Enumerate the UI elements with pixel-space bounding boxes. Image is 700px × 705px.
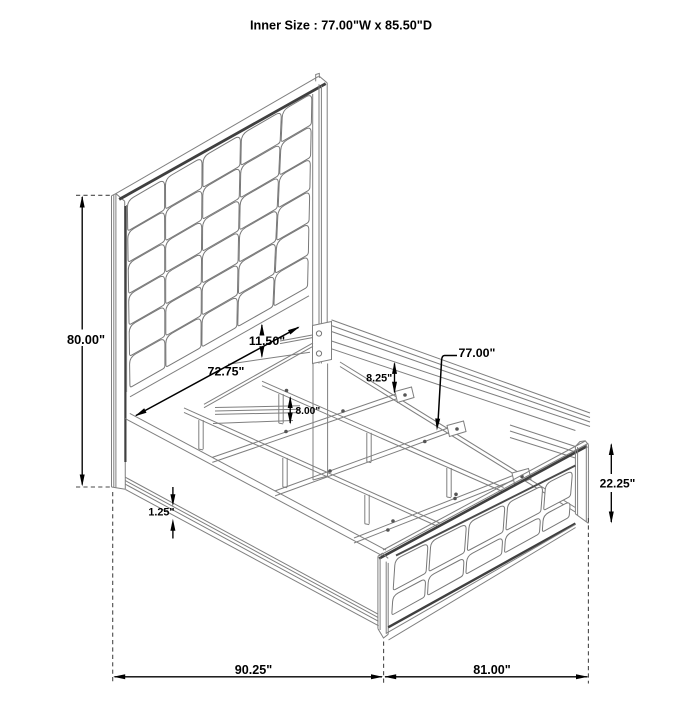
svg-text:77.00": 77.00": [459, 346, 496, 360]
svg-text:1.25": 1.25": [148, 507, 174, 519]
svg-text:Inner Size : 77.00"W x 85.50"D: Inner Size : 77.00"W x 85.50"D: [250, 19, 432, 33]
svg-text:22.25": 22.25": [600, 477, 636, 491]
svg-text:81.00": 81.00": [473, 663, 511, 677]
svg-text:90.25": 90.25": [235, 663, 273, 677]
svg-text:8.00": 8.00": [296, 406, 321, 417]
svg-text:8.25": 8.25": [366, 373, 392, 385]
svg-text:80.00": 80.00": [67, 332, 105, 347]
svg-text:72.75": 72.75": [208, 365, 245, 379]
svg-text:11.50": 11.50": [249, 334, 285, 348]
